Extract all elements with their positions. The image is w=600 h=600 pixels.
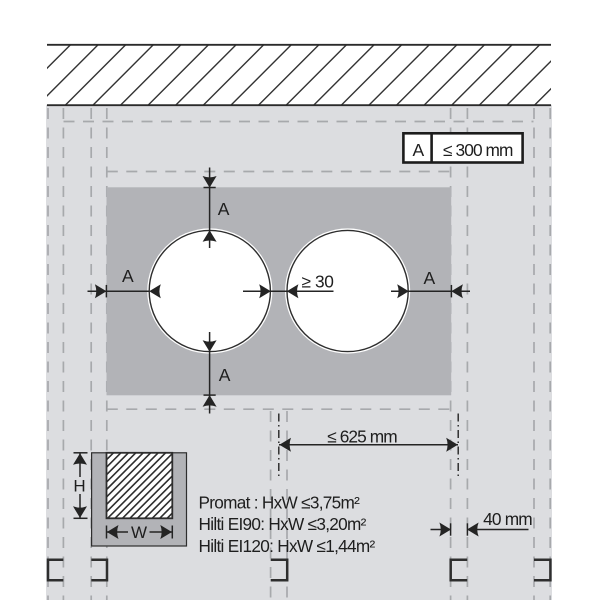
svg-text:A: A <box>219 365 231 385</box>
svg-text:40 mm: 40 mm <box>483 509 532 529</box>
svg-text:Hilti EI90: HxW ≤3,20m²: Hilti EI90: HxW ≤3,20m² <box>199 514 367 534</box>
svg-text:A: A <box>424 268 436 288</box>
svg-text:≥ 30: ≥ 30 <box>302 272 334 292</box>
svg-text:A: A <box>122 266 134 286</box>
svg-text:≤ 625 mm: ≤ 625 mm <box>327 426 397 446</box>
svg-text:W: W <box>131 523 147 542</box>
svg-text:A: A <box>218 199 230 219</box>
svg-text:Promat : HxW ≤3,75m²: Promat : HxW ≤3,75m² <box>199 493 361 513</box>
svg-text:Hilti EI120: HxW ≤1,44m²: Hilti EI120: HxW ≤1,44m² <box>199 536 376 556</box>
svg-text:H: H <box>73 477 85 496</box>
svg-text:A: A <box>412 140 424 160</box>
svg-text:≤ 300 mm: ≤ 300 mm <box>443 140 513 160</box>
